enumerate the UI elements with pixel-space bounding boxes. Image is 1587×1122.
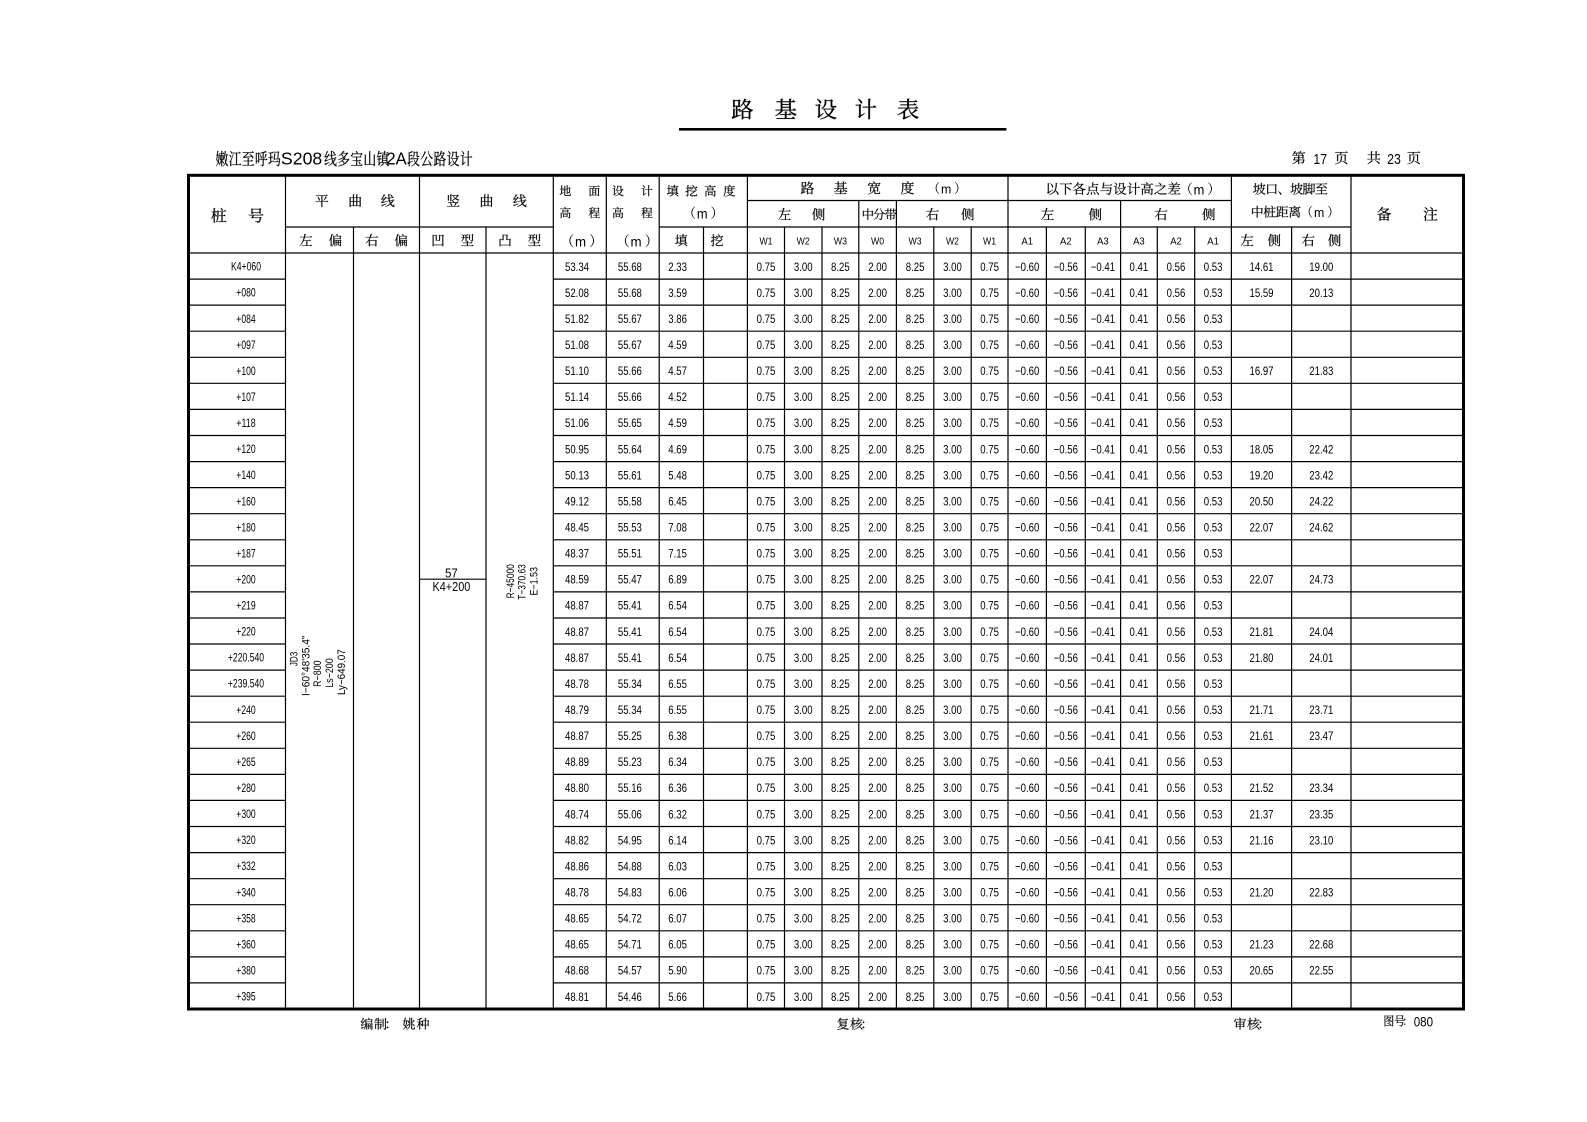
svg-text:+120: +120 bbox=[236, 444, 255, 456]
svg-text:0.56: 0.56 bbox=[1167, 990, 1186, 1004]
svg-text:24.22: 24.22 bbox=[1309, 495, 1333, 509]
svg-text:0.75: 0.75 bbox=[980, 703, 999, 717]
svg-text:−0.56: −0.56 bbox=[1054, 521, 1079, 535]
svg-text:22.07: 22.07 bbox=[1250, 521, 1274, 535]
svg-text:0.75: 0.75 bbox=[980, 573, 999, 587]
svg-text:0.75: 0.75 bbox=[980, 521, 999, 535]
svg-text:0.41: 0.41 bbox=[1130, 521, 1149, 535]
svg-text:0.53: 0.53 bbox=[1204, 807, 1223, 821]
svg-text:8.25: 8.25 bbox=[906, 859, 925, 873]
svg-text:−0.60: −0.60 bbox=[1015, 964, 1040, 978]
svg-text:−0.41: −0.41 bbox=[1091, 990, 1116, 1004]
svg-text:8.25: 8.25 bbox=[906, 521, 925, 535]
svg-text:8.25: 8.25 bbox=[831, 547, 850, 561]
svg-text:23.35: 23.35 bbox=[1309, 807, 1333, 821]
svg-text:−0.41: −0.41 bbox=[1091, 886, 1116, 900]
svg-text:0.75: 0.75 bbox=[980, 912, 999, 926]
svg-text:JD3: JD3 bbox=[288, 652, 300, 667]
svg-text:22.68: 22.68 bbox=[1309, 938, 1333, 952]
svg-text:−0.60: −0.60 bbox=[1015, 547, 1040, 561]
svg-text:55.41: 55.41 bbox=[618, 651, 642, 665]
svg-text:3.00: 3.00 bbox=[943, 547, 962, 561]
svg-text:0.75: 0.75 bbox=[757, 495, 776, 509]
svg-text:m: m bbox=[1194, 182, 1205, 197]
svg-text:−0.60: −0.60 bbox=[1015, 390, 1040, 404]
svg-text:6.06: 6.06 bbox=[668, 886, 687, 900]
svg-text:2.00: 2.00 bbox=[868, 364, 887, 378]
svg-text:K4+060: K4+060 bbox=[231, 262, 261, 274]
svg-text:0.75: 0.75 bbox=[757, 286, 776, 300]
svg-text:0.53: 0.53 bbox=[1204, 599, 1223, 613]
svg-text:0.53: 0.53 bbox=[1204, 573, 1223, 587]
svg-text:0.41: 0.41 bbox=[1130, 833, 1149, 847]
svg-text:2.00: 2.00 bbox=[868, 260, 887, 274]
svg-text:3.00: 3.00 bbox=[794, 703, 813, 717]
svg-text:0.56: 0.56 bbox=[1167, 886, 1186, 900]
svg-text:+220.540: +220.540 bbox=[228, 653, 264, 665]
svg-text:0.56: 0.56 bbox=[1167, 338, 1186, 352]
svg-text:51.14: 51.14 bbox=[565, 390, 589, 404]
svg-text:A2: A2 bbox=[1170, 236, 1182, 248]
svg-text:7.15: 7.15 bbox=[668, 547, 687, 561]
svg-text:+360: +360 bbox=[236, 939, 255, 951]
svg-text:0.75: 0.75 bbox=[757, 807, 776, 821]
svg-text:−0.60: −0.60 bbox=[1015, 286, 1040, 300]
svg-text:W3: W3 bbox=[834, 236, 847, 248]
svg-text:2.00: 2.00 bbox=[868, 547, 887, 561]
svg-text:3.00: 3.00 bbox=[794, 729, 813, 743]
svg-text:2.00: 2.00 bbox=[868, 833, 887, 847]
svg-text:55.47: 55.47 bbox=[618, 573, 642, 587]
svg-text:15.59: 15.59 bbox=[1250, 286, 1274, 300]
svg-text:m: m bbox=[1314, 205, 1324, 220]
svg-text:2.00: 2.00 bbox=[868, 677, 887, 691]
svg-text:−0.41: −0.41 bbox=[1091, 964, 1116, 978]
svg-text:+097: +097 bbox=[236, 340, 255, 352]
svg-text:51.10: 51.10 bbox=[565, 364, 589, 378]
svg-text:0.75: 0.75 bbox=[980, 312, 999, 326]
svg-text:R−45000: R−45000 bbox=[505, 564, 517, 598]
svg-text:3.00: 3.00 bbox=[794, 912, 813, 926]
svg-text:55.68: 55.68 bbox=[618, 260, 642, 274]
svg-text:0.56: 0.56 bbox=[1167, 807, 1186, 821]
svg-text:−0.41: −0.41 bbox=[1091, 547, 1116, 561]
svg-text:2.00: 2.00 bbox=[868, 521, 887, 535]
svg-text:4.59: 4.59 bbox=[668, 416, 687, 430]
svg-text:55.16: 55.16 bbox=[618, 781, 642, 795]
svg-text:A1: A1 bbox=[1207, 236, 1219, 248]
svg-text:0.53: 0.53 bbox=[1204, 416, 1223, 430]
svg-text:0.53: 0.53 bbox=[1204, 312, 1223, 326]
svg-text:51.82: 51.82 bbox=[565, 312, 589, 326]
svg-text:−0.60: −0.60 bbox=[1015, 468, 1040, 482]
svg-text:−0.56: −0.56 bbox=[1054, 781, 1079, 795]
svg-text:2.00: 2.00 bbox=[868, 755, 887, 769]
svg-text:0.56: 0.56 bbox=[1167, 260, 1186, 274]
svg-text:+100: +100 bbox=[236, 366, 255, 378]
svg-text:−0.41: −0.41 bbox=[1091, 286, 1116, 300]
svg-text:080: 080 bbox=[1414, 1013, 1433, 1029]
svg-text:0.53: 0.53 bbox=[1204, 990, 1223, 1004]
svg-text:2.00: 2.00 bbox=[868, 781, 887, 795]
svg-text:2.00: 2.00 bbox=[868, 729, 887, 743]
svg-text:0.56: 0.56 bbox=[1167, 573, 1186, 587]
svg-text:2.00: 2.00 bbox=[868, 599, 887, 613]
svg-text:48.87: 48.87 bbox=[565, 651, 589, 665]
svg-text:−0.56: −0.56 bbox=[1054, 547, 1079, 561]
svg-text:2.00: 2.00 bbox=[868, 807, 887, 821]
svg-text:0.41: 0.41 bbox=[1130, 859, 1149, 873]
svg-text:−0.60: −0.60 bbox=[1015, 990, 1040, 1004]
svg-text:−0.56: −0.56 bbox=[1054, 938, 1079, 952]
svg-text:8.25: 8.25 bbox=[906, 442, 925, 456]
svg-text:0.41: 0.41 bbox=[1130, 260, 1149, 274]
svg-text:−0.56: −0.56 bbox=[1054, 990, 1079, 1004]
svg-text:0.75: 0.75 bbox=[757, 912, 776, 926]
svg-text:48.89: 48.89 bbox=[565, 755, 589, 769]
svg-text:3.00: 3.00 bbox=[794, 677, 813, 691]
svg-text:0.75: 0.75 bbox=[980, 833, 999, 847]
svg-text:+260: +260 bbox=[236, 731, 255, 743]
svg-text:0.41: 0.41 bbox=[1130, 886, 1149, 900]
svg-text:0.53: 0.53 bbox=[1204, 938, 1223, 952]
svg-text:55.41: 55.41 bbox=[618, 599, 642, 613]
svg-text:0.41: 0.41 bbox=[1130, 416, 1149, 430]
svg-text:+320: +320 bbox=[236, 835, 255, 847]
svg-text:0.41: 0.41 bbox=[1130, 781, 1149, 795]
svg-text:2.00: 2.00 bbox=[868, 964, 887, 978]
svg-text:+265: +265 bbox=[236, 757, 255, 769]
svg-text:8.25: 8.25 bbox=[906, 312, 925, 326]
svg-text:8.25: 8.25 bbox=[831, 521, 850, 535]
svg-text:−0.41: −0.41 bbox=[1091, 625, 1116, 639]
svg-text:48.68: 48.68 bbox=[565, 964, 589, 978]
svg-text:0.75: 0.75 bbox=[757, 990, 776, 1004]
svg-text:+080: +080 bbox=[236, 288, 255, 300]
svg-text:−0.60: −0.60 bbox=[1015, 573, 1040, 587]
svg-text:0.75: 0.75 bbox=[757, 833, 776, 847]
svg-text:48.65: 48.65 bbox=[565, 912, 589, 926]
svg-text:0.75: 0.75 bbox=[757, 260, 776, 274]
svg-text:3.00: 3.00 bbox=[794, 547, 813, 561]
svg-text:0.41: 0.41 bbox=[1130, 547, 1149, 561]
svg-text:−0.41: −0.41 bbox=[1091, 495, 1116, 509]
svg-text:−0.41: −0.41 bbox=[1091, 416, 1116, 430]
svg-text:3.59: 3.59 bbox=[668, 286, 687, 300]
svg-text:48.37: 48.37 bbox=[565, 547, 589, 561]
svg-text:55.23: 55.23 bbox=[618, 755, 642, 769]
svg-text:0.41: 0.41 bbox=[1130, 286, 1149, 300]
svg-text:55.66: 55.66 bbox=[618, 364, 642, 378]
svg-text:0.75: 0.75 bbox=[757, 573, 776, 587]
svg-text:8.25: 8.25 bbox=[831, 938, 850, 952]
svg-text:+280: +280 bbox=[236, 783, 255, 795]
svg-text:3.00: 3.00 bbox=[943, 495, 962, 509]
svg-text:8.25: 8.25 bbox=[831, 807, 850, 821]
svg-text:8.25: 8.25 bbox=[831, 755, 850, 769]
svg-text:−0.56: −0.56 bbox=[1054, 495, 1079, 509]
svg-text:2.00: 2.00 bbox=[868, 859, 887, 873]
svg-text:19.00: 19.00 bbox=[1309, 260, 1333, 274]
svg-text:23.10: 23.10 bbox=[1309, 833, 1333, 847]
svg-text:3.00: 3.00 bbox=[794, 416, 813, 430]
svg-text:3.00: 3.00 bbox=[943, 390, 962, 404]
svg-text:22.07: 22.07 bbox=[1250, 573, 1274, 587]
svg-text:0.53: 0.53 bbox=[1204, 468, 1223, 482]
svg-text:0.56: 0.56 bbox=[1167, 547, 1186, 561]
svg-text:0.75: 0.75 bbox=[757, 859, 776, 873]
svg-text:19.20: 19.20 bbox=[1250, 468, 1274, 482]
svg-text:8.25: 8.25 bbox=[906, 912, 925, 926]
svg-text:24.73: 24.73 bbox=[1309, 573, 1333, 587]
svg-text:23.71: 23.71 bbox=[1309, 703, 1333, 717]
svg-text:0.56: 0.56 bbox=[1167, 442, 1186, 456]
svg-text:2.00: 2.00 bbox=[868, 286, 887, 300]
svg-text:0.56: 0.56 bbox=[1167, 938, 1186, 952]
svg-text:0.75: 0.75 bbox=[757, 442, 776, 456]
svg-text:0.75: 0.75 bbox=[980, 625, 999, 639]
svg-text:+160: +160 bbox=[236, 496, 255, 508]
svg-text:−0.56: −0.56 bbox=[1054, 677, 1079, 691]
svg-text:0.41: 0.41 bbox=[1130, 573, 1149, 587]
svg-text:−0.41: −0.41 bbox=[1091, 651, 1116, 665]
svg-text:−0.60: −0.60 bbox=[1015, 338, 1040, 352]
svg-text:3.00: 3.00 bbox=[943, 755, 962, 769]
svg-text:21.61: 21.61 bbox=[1250, 729, 1274, 743]
svg-text:0.41: 0.41 bbox=[1130, 495, 1149, 509]
svg-text:5.66: 5.66 bbox=[668, 990, 687, 1004]
svg-text:−0.60: −0.60 bbox=[1015, 416, 1040, 430]
svg-text:3.00: 3.00 bbox=[794, 521, 813, 535]
svg-text:E−1.53: E−1.53 bbox=[529, 567, 541, 596]
svg-text:−0.41: −0.41 bbox=[1091, 833, 1116, 847]
svg-text:−0.60: −0.60 bbox=[1015, 807, 1040, 821]
svg-text:55.66: 55.66 bbox=[618, 390, 642, 404]
svg-text:0.75: 0.75 bbox=[980, 468, 999, 482]
svg-text:2.00: 2.00 bbox=[868, 886, 887, 900]
svg-text:0.56: 0.56 bbox=[1167, 416, 1186, 430]
svg-text:8.25: 8.25 bbox=[831, 338, 850, 352]
svg-text:+395: +395 bbox=[236, 992, 255, 1004]
svg-text:8.25: 8.25 bbox=[831, 677, 850, 691]
svg-text:−0.60: −0.60 bbox=[1015, 886, 1040, 900]
svg-text:−0.60: −0.60 bbox=[1015, 938, 1040, 952]
svg-text:0.53: 0.53 bbox=[1204, 964, 1223, 978]
svg-text:3.00: 3.00 bbox=[943, 416, 962, 430]
svg-text:+107: +107 bbox=[236, 392, 255, 404]
svg-text:6.55: 6.55 bbox=[668, 703, 687, 717]
svg-text:3.00: 3.00 bbox=[794, 859, 813, 873]
svg-text:3.00: 3.00 bbox=[943, 651, 962, 665]
svg-text:55.06: 55.06 bbox=[618, 807, 642, 821]
svg-text:8.25: 8.25 bbox=[906, 964, 925, 978]
svg-text:8.25: 8.25 bbox=[906, 755, 925, 769]
svg-text:m: m bbox=[575, 234, 586, 250]
svg-text:+187: +187 bbox=[236, 548, 255, 560]
svg-text:22.83: 22.83 bbox=[1309, 886, 1333, 900]
svg-text:3.00: 3.00 bbox=[794, 260, 813, 274]
svg-text:0.56: 0.56 bbox=[1167, 755, 1186, 769]
svg-text:48.80: 48.80 bbox=[565, 781, 589, 795]
svg-text:3.00: 3.00 bbox=[794, 390, 813, 404]
svg-text:−0.56: −0.56 bbox=[1054, 807, 1079, 821]
svg-text:2.00: 2.00 bbox=[868, 703, 887, 717]
svg-text:3.00: 3.00 bbox=[943, 338, 962, 352]
svg-text:0.53: 0.53 bbox=[1204, 859, 1223, 873]
svg-text:48.59: 48.59 bbox=[565, 573, 589, 587]
svg-text:−0.41: −0.41 bbox=[1091, 521, 1116, 535]
svg-text:0.75: 0.75 bbox=[980, 338, 999, 352]
svg-text:A1: A1 bbox=[1021, 236, 1033, 248]
svg-text:48.81: 48.81 bbox=[565, 990, 589, 1004]
svg-text:0.53: 0.53 bbox=[1204, 390, 1223, 404]
svg-text:55.51: 55.51 bbox=[618, 547, 642, 561]
svg-text:0.56: 0.56 bbox=[1167, 677, 1186, 691]
svg-text:8.25: 8.25 bbox=[831, 390, 850, 404]
svg-text:3.00: 3.00 bbox=[794, 990, 813, 1004]
svg-text:−0.56: −0.56 bbox=[1054, 442, 1079, 456]
svg-text:0.75: 0.75 bbox=[980, 677, 999, 691]
svg-text:3.00: 3.00 bbox=[794, 364, 813, 378]
svg-text:−0.56: −0.56 bbox=[1054, 416, 1079, 430]
svg-text:−0.41: −0.41 bbox=[1091, 364, 1116, 378]
svg-text:+358: +358 bbox=[236, 913, 255, 925]
svg-text:3.00: 3.00 bbox=[943, 442, 962, 456]
svg-text:6.54: 6.54 bbox=[668, 599, 687, 613]
svg-text:−0.60: −0.60 bbox=[1015, 833, 1040, 847]
svg-text:−0.41: −0.41 bbox=[1091, 390, 1116, 404]
svg-text:A2: A2 bbox=[1060, 236, 1072, 248]
svg-text:m: m bbox=[697, 206, 708, 221]
svg-text:20.13: 20.13 bbox=[1309, 286, 1333, 300]
svg-text:3.00: 3.00 bbox=[794, 886, 813, 900]
svg-text:22.55: 22.55 bbox=[1309, 964, 1333, 978]
svg-text:−0.56: −0.56 bbox=[1054, 833, 1079, 847]
svg-text:+332: +332 bbox=[236, 861, 255, 873]
svg-text:21.80: 21.80 bbox=[1250, 651, 1274, 665]
svg-text:+118: +118 bbox=[236, 418, 255, 430]
svg-text:0.53: 0.53 bbox=[1204, 755, 1223, 769]
svg-text:48.65: 48.65 bbox=[565, 938, 589, 952]
svg-text:50.13: 50.13 bbox=[565, 468, 589, 482]
svg-text:0.75: 0.75 bbox=[757, 468, 776, 482]
svg-text:8.25: 8.25 bbox=[906, 416, 925, 430]
svg-text:0.56: 0.56 bbox=[1167, 468, 1186, 482]
svg-text:2.00: 2.00 bbox=[868, 651, 887, 665]
svg-text:0.75: 0.75 bbox=[757, 312, 776, 326]
svg-text:2.00: 2.00 bbox=[868, 390, 887, 404]
svg-text:8.25: 8.25 bbox=[906, 677, 925, 691]
svg-text:0.53: 0.53 bbox=[1204, 912, 1223, 926]
svg-text:55.58: 55.58 bbox=[618, 495, 642, 509]
svg-text:3.00: 3.00 bbox=[943, 599, 962, 613]
svg-text:0.75: 0.75 bbox=[980, 364, 999, 378]
svg-text:m: m bbox=[941, 181, 951, 196]
svg-text:m: m bbox=[631, 234, 642, 250]
svg-text:0.56: 0.56 bbox=[1167, 286, 1186, 300]
svg-text:−0.56: −0.56 bbox=[1054, 755, 1079, 769]
svg-text:52.08: 52.08 bbox=[565, 286, 589, 300]
svg-text:0.75: 0.75 bbox=[757, 938, 776, 952]
svg-text:8.25: 8.25 bbox=[831, 312, 850, 326]
svg-text:0.75: 0.75 bbox=[757, 416, 776, 430]
svg-text:3.00: 3.00 bbox=[943, 964, 962, 978]
svg-text:+380: +380 bbox=[236, 966, 255, 978]
svg-text:21.20: 21.20 bbox=[1250, 886, 1274, 900]
svg-text:+340: +340 bbox=[236, 887, 255, 899]
svg-text:0.75: 0.75 bbox=[757, 677, 776, 691]
svg-text:2.00: 2.00 bbox=[868, 938, 887, 952]
svg-text:55.68: 55.68 bbox=[618, 286, 642, 300]
svg-text:0.75: 0.75 bbox=[980, 938, 999, 952]
svg-text:6.36: 6.36 bbox=[668, 781, 687, 795]
svg-text:0.75: 0.75 bbox=[980, 599, 999, 613]
svg-text:21.37: 21.37 bbox=[1250, 807, 1274, 821]
svg-text:6.45: 6.45 bbox=[668, 495, 687, 509]
svg-text:14.61: 14.61 bbox=[1250, 260, 1274, 274]
svg-text:6.03: 6.03 bbox=[668, 859, 687, 873]
svg-text:3.00: 3.00 bbox=[794, 833, 813, 847]
svg-text:I−60°48'35.4": I−60°48'35.4" bbox=[300, 636, 312, 696]
svg-text:51.06: 51.06 bbox=[565, 416, 589, 430]
svg-text:6.05: 6.05 bbox=[668, 938, 687, 952]
svg-text:23.47: 23.47 bbox=[1309, 729, 1333, 743]
svg-text:6.34: 6.34 bbox=[668, 755, 687, 769]
svg-text:20.65: 20.65 bbox=[1250, 964, 1274, 978]
svg-text:−0.41: −0.41 bbox=[1091, 573, 1116, 587]
svg-text:0.75: 0.75 bbox=[757, 364, 776, 378]
svg-text:2.00: 2.00 bbox=[868, 912, 887, 926]
svg-text:2.00: 2.00 bbox=[868, 625, 887, 639]
svg-text:−0.56: −0.56 bbox=[1054, 599, 1079, 613]
svg-text:0.75: 0.75 bbox=[757, 338, 776, 352]
svg-text:3.00: 3.00 bbox=[794, 651, 813, 665]
svg-text:48.87: 48.87 bbox=[565, 729, 589, 743]
svg-text:0.41: 0.41 bbox=[1130, 964, 1149, 978]
svg-text:55.67: 55.67 bbox=[618, 338, 642, 352]
svg-text:0.53: 0.53 bbox=[1204, 286, 1223, 300]
svg-text:2.00: 2.00 bbox=[868, 495, 887, 509]
svg-text:0.56: 0.56 bbox=[1167, 964, 1186, 978]
svg-text:−0.56: −0.56 bbox=[1054, 260, 1079, 274]
svg-text:3.00: 3.00 bbox=[794, 625, 813, 639]
svg-text:0.75: 0.75 bbox=[757, 521, 776, 535]
svg-text:8.25: 8.25 bbox=[906, 495, 925, 509]
svg-text:0.41: 0.41 bbox=[1130, 729, 1149, 743]
svg-text:0.41: 0.41 bbox=[1130, 390, 1149, 404]
svg-text:3.00: 3.00 bbox=[794, 755, 813, 769]
svg-text:−0.60: −0.60 bbox=[1015, 912, 1040, 926]
svg-text:8.25: 8.25 bbox=[906, 364, 925, 378]
svg-text:8.25: 8.25 bbox=[831, 781, 850, 795]
svg-text:0.56: 0.56 bbox=[1167, 364, 1186, 378]
svg-text:48.87: 48.87 bbox=[565, 625, 589, 639]
svg-text:0.75: 0.75 bbox=[757, 703, 776, 717]
svg-text:−0.56: −0.56 bbox=[1054, 859, 1079, 873]
svg-text:8.25: 8.25 bbox=[906, 703, 925, 717]
svg-text:−0.60: −0.60 bbox=[1015, 260, 1040, 274]
svg-text:0.56: 0.56 bbox=[1167, 781, 1186, 795]
svg-text:23.42: 23.42 bbox=[1309, 468, 1333, 482]
svg-text:8.25: 8.25 bbox=[831, 625, 850, 639]
svg-text:8.25: 8.25 bbox=[906, 990, 925, 1004]
svg-text:−0.41: −0.41 bbox=[1091, 781, 1116, 795]
svg-text:8.25: 8.25 bbox=[906, 886, 925, 900]
svg-text:3.00: 3.00 bbox=[794, 286, 813, 300]
svg-text:3.86: 3.86 bbox=[668, 312, 687, 326]
svg-text:0.75: 0.75 bbox=[980, 547, 999, 561]
svg-text:8.25: 8.25 bbox=[831, 599, 850, 613]
